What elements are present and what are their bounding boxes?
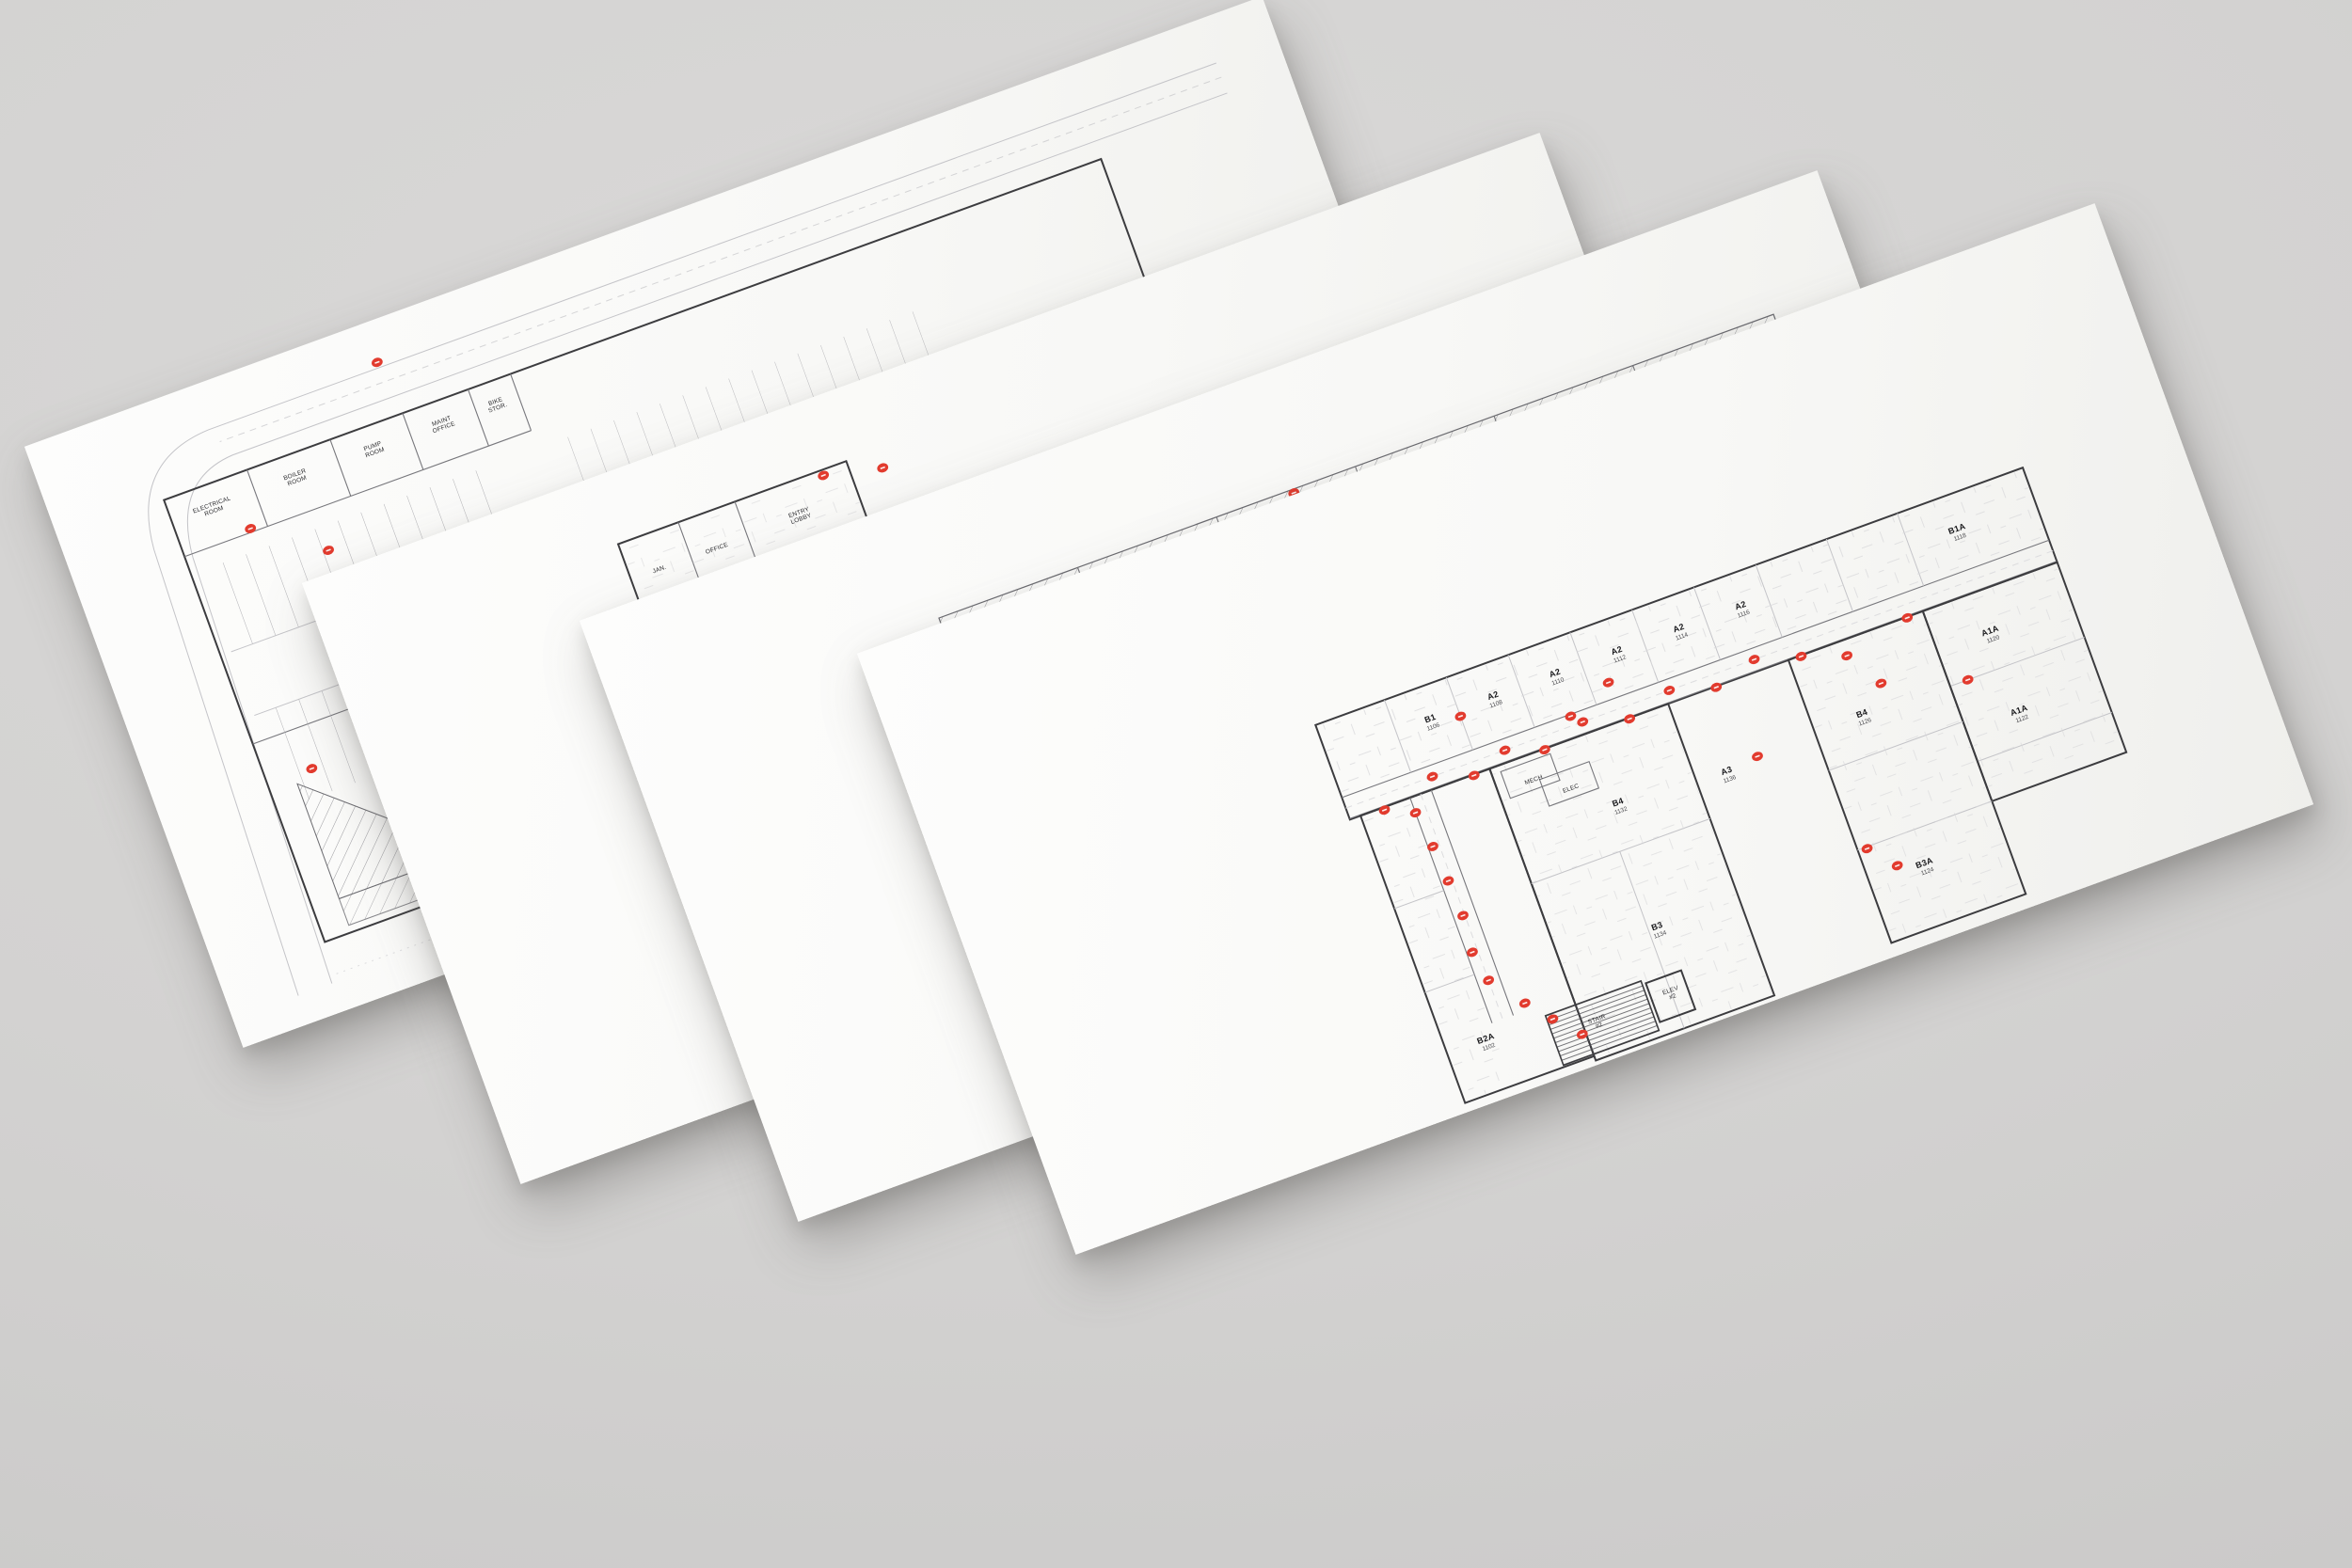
mockup-scene: ELECTRICALROOMBOILERROOMPUMPROOMMAINTOFF… bbox=[0, 0, 2352, 1568]
room-label: BOILERROOM bbox=[283, 467, 310, 488]
room-label: BIKESTOR. bbox=[485, 395, 508, 414]
room-label: ELECTRICALROOM bbox=[192, 495, 234, 521]
room-label: MAINTOFFICE bbox=[430, 414, 457, 435]
room-label: PUMPROOM bbox=[362, 440, 386, 459]
unit-label: A31136 bbox=[1719, 764, 1738, 784]
